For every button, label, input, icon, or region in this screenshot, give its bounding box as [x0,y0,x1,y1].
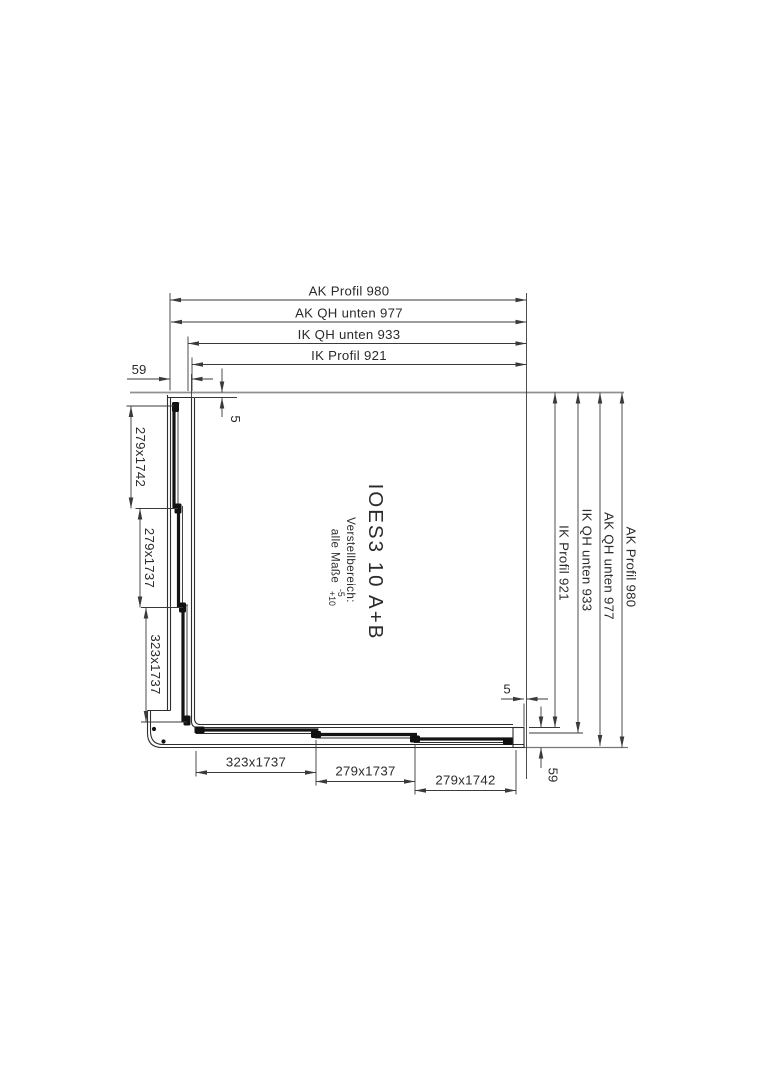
dim-label-top-ik-qh: IK QH unten 933 [298,327,401,342]
adjust-range-measures: alle Maße [329,529,342,584]
corner-connector [148,711,171,748]
drawing-page: AK Profil 980 AK QH unten 977 IK QH unte… [0,0,763,1080]
right-dimensions: IK Profil 921 IK QH unten 933 AK QH unte… [529,393,639,748]
corner-screw [161,739,165,743]
dim-label-right-ik-qh: IK QH unten 933 [580,509,595,612]
dim-label-right-ak-profil: AK Profil 980 [624,527,639,608]
dim-label-left-3: 323x1737 [148,634,163,694]
dim-label-top-ik-profil: IK Profil 921 [311,348,387,363]
dim-label-gap-top-left: 5 [228,415,243,422]
dim-label-right-ak-qh: AK QH unten 977 [602,512,617,620]
dim-label-offset-bottom-right: 59 [546,768,561,783]
wall-b-profile [162,725,524,748]
dim-label-offset-top-left: 59 [132,362,147,377]
dim-label-left-2: 279x1737 [142,528,157,588]
technical-drawing: AK Profil 980 AK QH unten 977 IK QH unte… [0,0,763,1080]
dim-label-bottom-1: 323x1737 [226,755,286,770]
dim-label-right-ik-profil: IK Profil 921 [557,525,572,601]
dim-label-top-ak-qh: AK QH unten 977 [295,306,403,321]
dim-label-bottom-2: 279x1737 [335,764,395,779]
dim-label-bottom-3: 279x1742 [435,773,495,788]
dim-label-gap-bottom-right: 5 [503,682,510,697]
corner-screw [152,727,156,731]
dim-label-top-ak-profil: AK Profil 980 [309,284,390,299]
bottom-dimensions: 323x1737 279x1737 279x1742 [196,740,516,795]
drawing-title: IOES3 10 A+B [364,484,387,641]
wall-a-profile [168,395,201,728]
wall-a-glass-panels [172,403,188,722]
center-labels: IOES3 10 A+B Verstellbereich: alle Maße … [327,484,387,641]
wall-b-glass-panels [196,728,513,742]
adjust-tolerance-plus: +10 [327,591,337,606]
dim-label-left-1: 279x1742 [133,427,148,487]
